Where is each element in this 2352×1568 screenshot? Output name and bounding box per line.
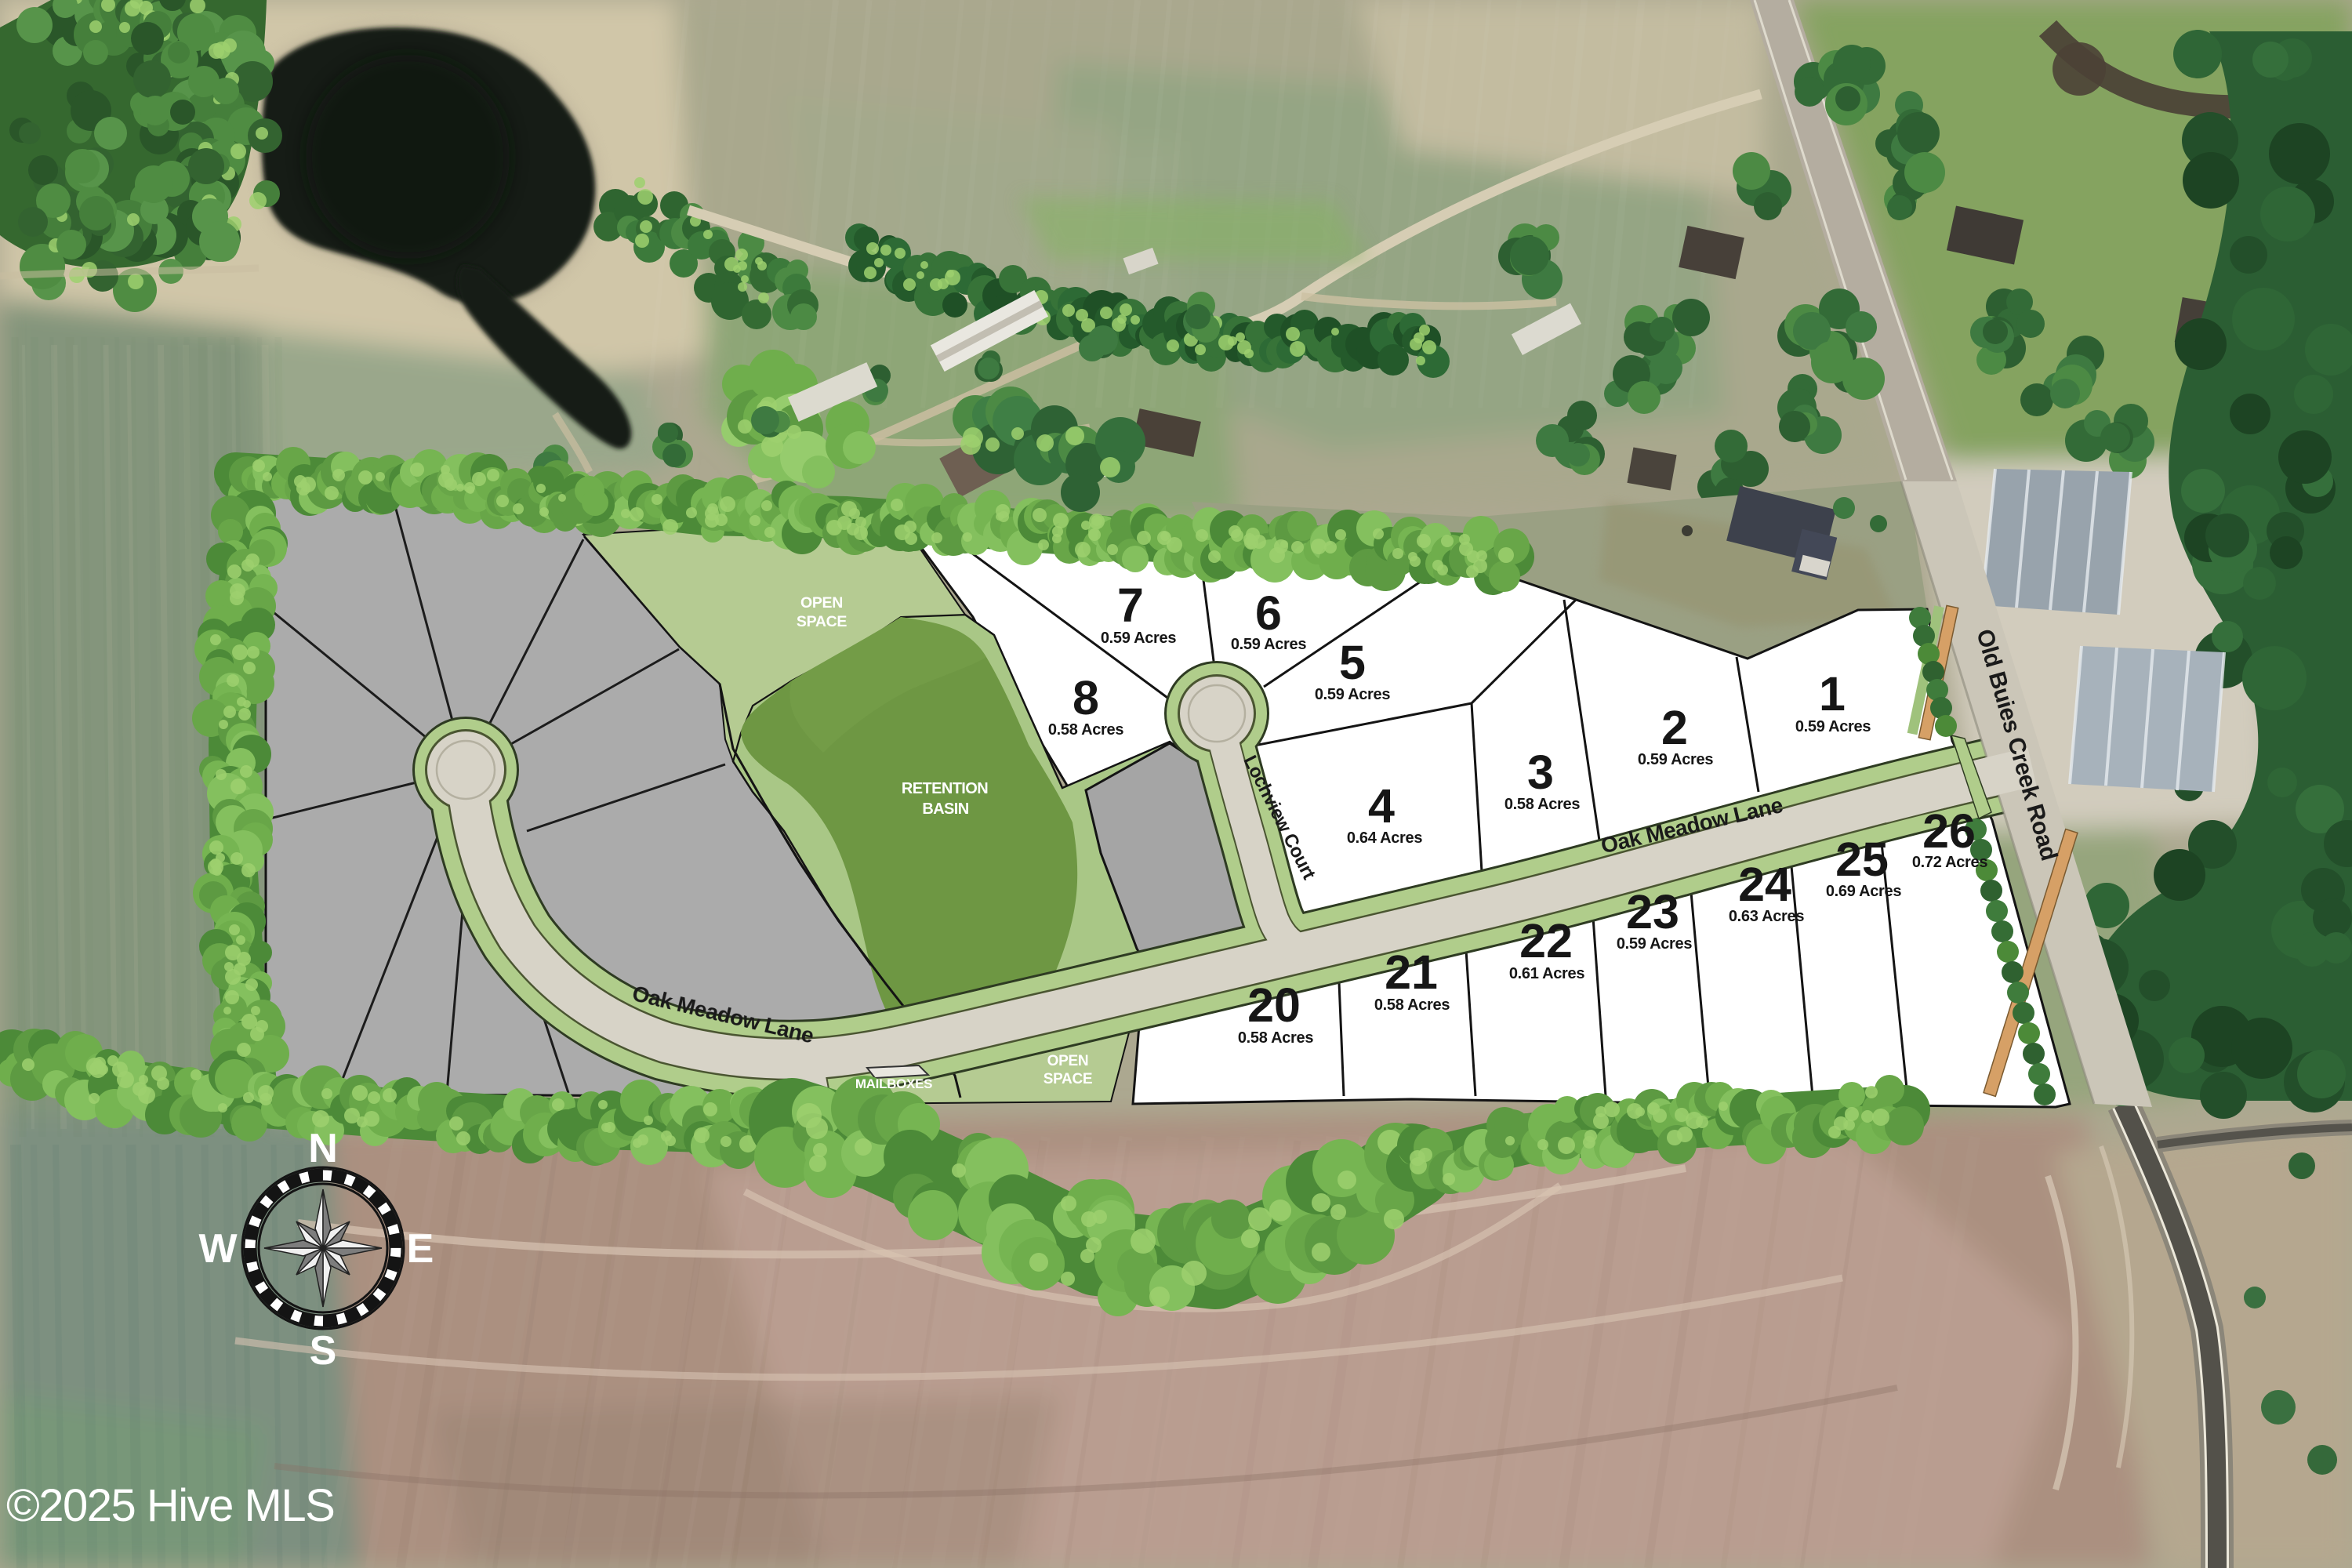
- svg-text:OPEN: OPEN: [800, 594, 843, 612]
- svg-text:RETENTION: RETENTION: [902, 780, 988, 797]
- svg-text:0.58 Acres: 0.58 Acres: [1374, 996, 1450, 1014]
- svg-text:SPACE: SPACE: [797, 613, 848, 630]
- svg-text:0.58 Acres: 0.58 Acres: [1048, 721, 1124, 739]
- svg-text:0.58 Acres: 0.58 Acres: [1238, 1029, 1314, 1047]
- svg-text:0.69 Acres: 0.69 Acres: [1826, 883, 1902, 900]
- svg-text:24: 24: [1738, 858, 1791, 911]
- svg-text:E: E: [407, 1226, 434, 1272]
- svg-text:25: 25: [1835, 833, 1889, 886]
- svg-text:22: 22: [1519, 914, 1573, 967]
- svg-text:23: 23: [1626, 885, 1679, 938]
- svg-text:0.61 Acres: 0.61 Acres: [1509, 965, 1585, 982]
- svg-text:N: N: [308, 1126, 338, 1171]
- svg-text:©2025 Hive MLS: ©2025 Hive MLS: [6, 1480, 334, 1531]
- svg-text:3: 3: [1527, 746, 1554, 799]
- svg-text:BASIN: BASIN: [922, 800, 968, 818]
- svg-text:26: 26: [1922, 804, 1976, 858]
- svg-text:MAILBOXES: MAILBOXES: [855, 1076, 932, 1091]
- svg-text:W: W: [198, 1226, 238, 1272]
- svg-text:0.59 Acres: 0.59 Acres: [1617, 935, 1693, 953]
- svg-text:0.59 Acres: 0.59 Acres: [1315, 686, 1391, 703]
- svg-text:OPEN: OPEN: [1047, 1053, 1089, 1069]
- svg-text:2: 2: [1661, 701, 1688, 754]
- svg-text:0.59 Acres: 0.59 Acres: [1101, 630, 1177, 647]
- svg-text:S: S: [310, 1328, 337, 1374]
- svg-text:20: 20: [1247, 978, 1301, 1032]
- svg-text:0.63 Acres: 0.63 Acres: [1729, 908, 1805, 925]
- svg-text:21: 21: [1385, 946, 1438, 999]
- svg-text:0.72 Acres: 0.72 Acres: [1912, 854, 1988, 871]
- svg-text:0.64 Acres: 0.64 Acres: [1347, 829, 1423, 847]
- svg-text:0.58 Acres: 0.58 Acres: [1504, 796, 1581, 813]
- svg-text:6: 6: [1255, 586, 1282, 640]
- svg-text:SPACE: SPACE: [1044, 1071, 1093, 1087]
- svg-text:8: 8: [1073, 671, 1099, 724]
- svg-text:0.59 Acres: 0.59 Acres: [1638, 751, 1714, 768]
- svg-text:1: 1: [1819, 667, 1846, 720]
- svg-text:5: 5: [1339, 636, 1366, 689]
- svg-text:7: 7: [1117, 579, 1144, 632]
- svg-text:4: 4: [1368, 779, 1395, 833]
- svg-text:0.59 Acres: 0.59 Acres: [1795, 718, 1871, 735]
- svg-text:0.59 Acres: 0.59 Acres: [1231, 636, 1307, 653]
